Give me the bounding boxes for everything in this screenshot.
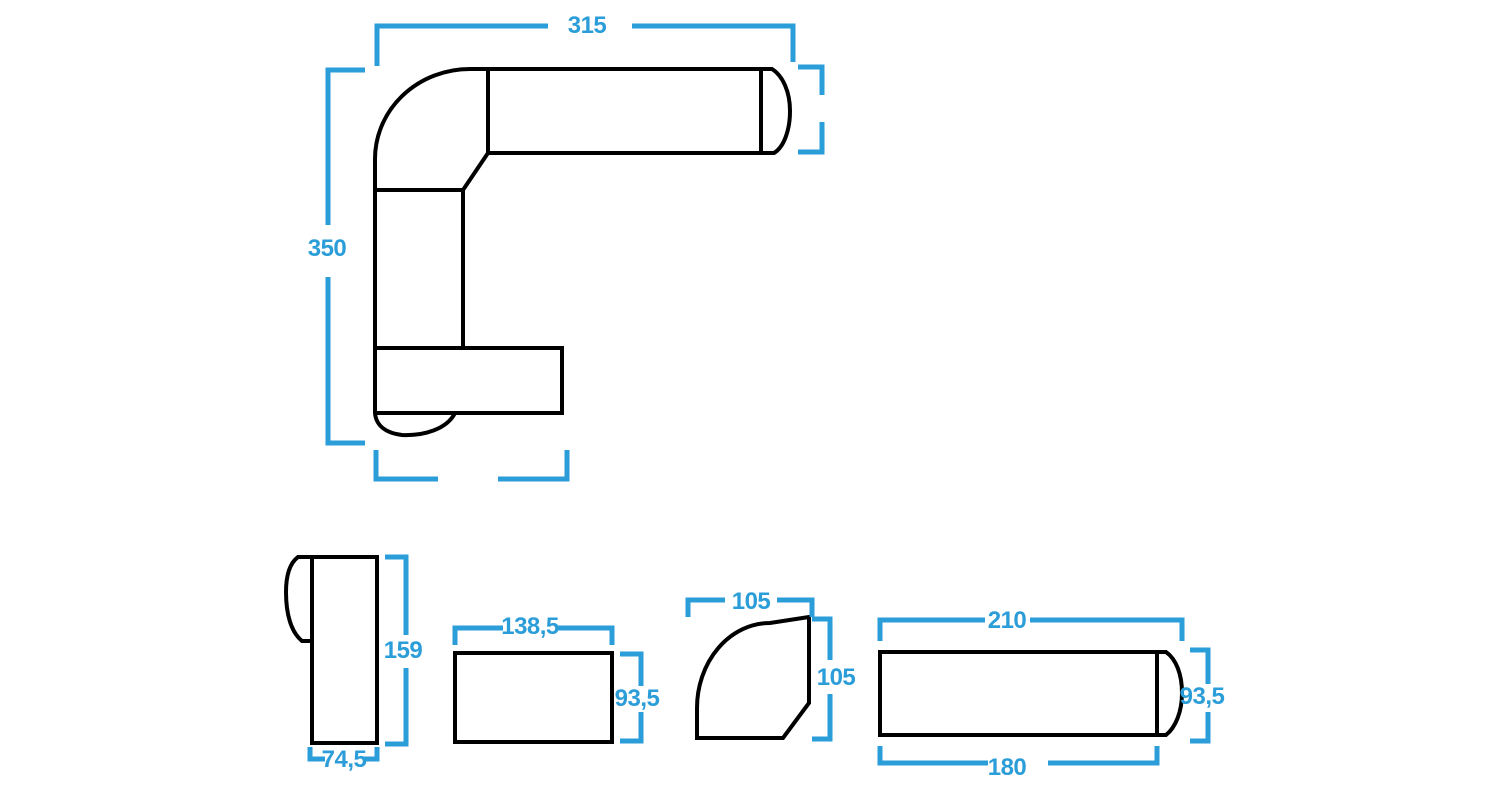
- diagram-drawing: [0, 0, 1500, 806]
- dim-label-corner-width: 105: [732, 590, 771, 614]
- piece-sofa-outline: [880, 652, 1182, 735]
- piece-sofa-body: [880, 652, 1182, 735]
- bracket-sofa-width-210: [880, 620, 1182, 641]
- dim-label-corner-height: 105: [817, 666, 856, 690]
- dim-label-sofa-width-seat: 180: [988, 756, 1027, 780]
- dim-label-assembled-top: 315: [568, 14, 607, 38]
- assembled-sofa-body: [375, 69, 790, 435]
- piece-chaise-armrest: [286, 557, 312, 641]
- bracket-bottom-unlabeled: [376, 450, 567, 479]
- dim-label-sofa-width-total: 210: [988, 609, 1027, 633]
- dim-label-sofa-height: 93,5: [1180, 685, 1225, 709]
- piece-chaise-outline: [286, 557, 377, 743]
- sofa-dimension-diagram: 315 350 159 74,5 138,5 93,5 105 105 210 …: [0, 0, 1500, 806]
- dim-label-seat-height: 93,5: [615, 687, 660, 711]
- piece-corner-outline: [697, 617, 809, 738]
- dim-label-seat-width: 138,5: [501, 615, 559, 639]
- dim-label-assembled-left: 350: [308, 237, 347, 261]
- piece-chaise-body: [312, 557, 377, 743]
- dim-label-chaise-height: 159: [384, 639, 423, 663]
- piece-seat-outline: [455, 653, 612, 742]
- assembled-sofa-outline: [375, 69, 790, 435]
- bracket-right-unlabeled: [798, 67, 822, 152]
- piece-corner-body: [697, 617, 809, 738]
- dim-label-chaise-width: 74,5: [322, 748, 367, 772]
- piece-seat-body: [455, 653, 612, 742]
